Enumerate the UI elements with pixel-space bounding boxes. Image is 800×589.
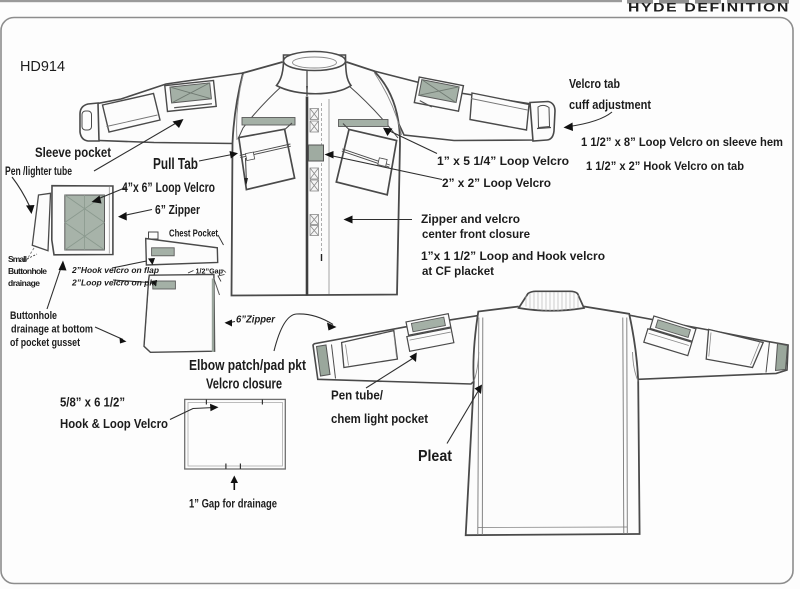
svg-text:1” x 5 1/4” Loop Velcro: 1” x 5 1/4” Loop Velcro [437, 154, 569, 168]
svg-text:at CF placket: at CF placket [422, 264, 494, 278]
svg-text:6”Zipper: 6”Zipper [236, 314, 276, 326]
svg-text:cuff adjustment: cuff adjustment [569, 98, 652, 112]
svg-text:Pen /lighter tube: Pen /lighter tube [5, 166, 72, 178]
svg-text:chem light pocket: chem light pocket [331, 411, 429, 426]
svg-text:Pull Tab: Pull Tab [153, 156, 198, 173]
svg-text:5/8” x 6 1/2”: 5/8” x 6 1/2” [60, 395, 125, 410]
svg-text:drainage: drainage [8, 278, 40, 288]
svg-text:Buttonhole: Buttonhole [8, 266, 47, 276]
svg-text:Pen tube/: Pen tube/ [331, 388, 383, 403]
svg-text:2”Hook velcro on flap: 2”Hook velcro on flap [71, 266, 159, 275]
svg-text:center front closure: center front closure [422, 227, 530, 241]
svg-text:Chest Pocket: Chest Pocket [169, 229, 219, 240]
svg-text:1”x 1 1/2” Loop and Hook velc: 1”x 1 1/2” Loop and Hook velcro [421, 249, 605, 263]
svg-text:4”x 6” Loop Velcro: 4”x 6” Loop Velcro [122, 180, 215, 195]
svg-text:2” x 2” Loop Velcro: 2” x 2” Loop Velcro [442, 176, 551, 190]
svg-text:1 1/2” x 2” Hook Velcro on ta: 1 1/2” x 2” Hook Velcro on tab [586, 161, 744, 173]
svg-text:Hook & Loop Velcro: Hook & Loop Velcro [60, 416, 168, 431]
svg-text:of pocket gusset: of pocket gusset [10, 337, 80, 349]
svg-text:Buttonhole: Buttonhole [10, 310, 57, 322]
svg-text:Sleeve pocket: Sleeve pocket [35, 144, 111, 160]
svg-text:1 1/2” x 8” Loop Velcro on s: 1 1/2” x 8” Loop Velcro on sleeve hem [581, 137, 783, 149]
svg-text:Velcro tab: Velcro tab [569, 77, 620, 91]
svg-text:1/2”Gap: 1/2”Gap [196, 267, 224, 276]
svg-text:drainage at bottom: drainage at bottom [11, 324, 93, 336]
svg-text:Small: Small [8, 254, 27, 264]
svg-text:Pleat: Pleat [418, 448, 452, 465]
svg-text:Velcro closure: Velcro closure [206, 377, 282, 393]
svg-text:Elbow patch/pad pkt: Elbow patch/pad pkt [189, 358, 306, 374]
svg-text:Zipper and velcro: Zipper and velcro [421, 212, 520, 226]
svg-text:2”Loop velcro on pkt: 2”Loop velcro on pkt [71, 279, 157, 288]
svg-text:1” Gap for drainage: 1” Gap for drainage [189, 499, 277, 511]
svg-text:HYDE DEFINITION: HYDE DEFINITION [628, 3, 790, 15]
svg-text:6” Zipper: 6” Zipper [155, 202, 200, 217]
svg-text:HD914: HD914 [20, 58, 65, 75]
